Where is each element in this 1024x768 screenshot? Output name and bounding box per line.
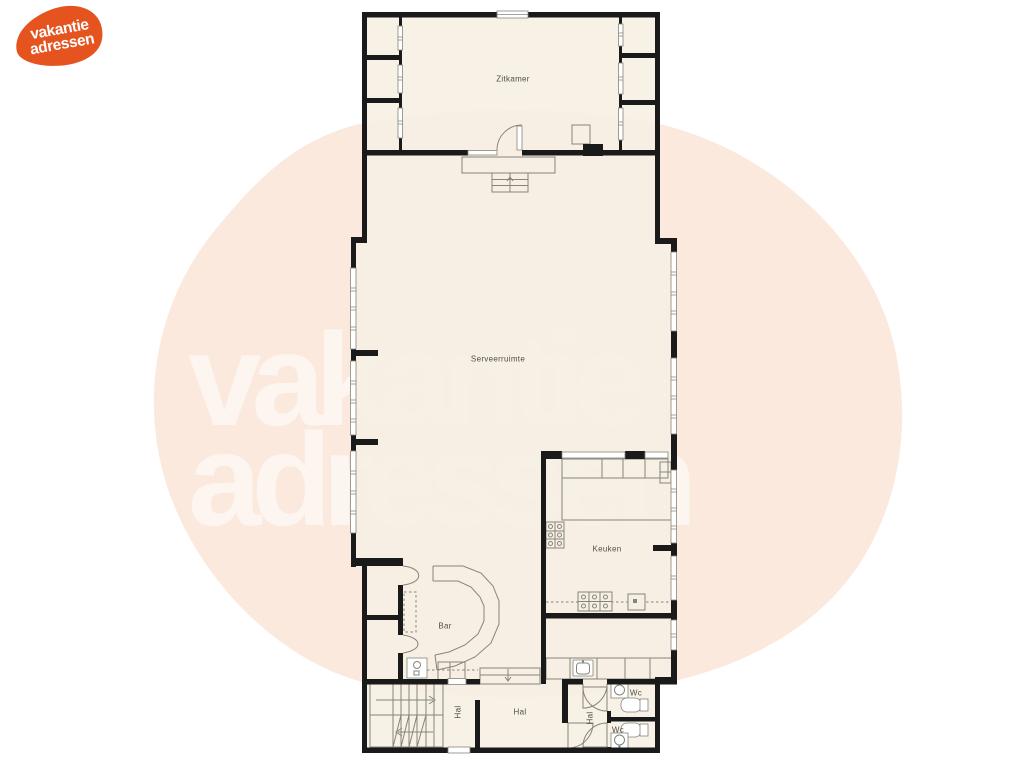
- floorplan-svg: [0, 0, 1024, 768]
- room-label-serveerruimte: Serveerruimte: [471, 355, 525, 364]
- room-label-wc-bottom: Wc: [612, 726, 624, 735]
- room-label-hal-main: Hal: [514, 708, 527, 717]
- room-label-hal-corridor: Hal: [454, 706, 463, 719]
- floorplan-page: vakantie adressen: [0, 0, 1024, 768]
- room-label-zitkamer: Zitkamer: [496, 75, 530, 84]
- room-label-hal-small: Hal: [586, 712, 595, 725]
- vakantieadressen-logo: vakantie adressen: [0, 0, 110, 75]
- room-label-bar: Bar: [438, 622, 451, 631]
- room-label-wc-top: Wc: [630, 689, 642, 698]
- room-label-keuken: Keuken: [593, 545, 622, 554]
